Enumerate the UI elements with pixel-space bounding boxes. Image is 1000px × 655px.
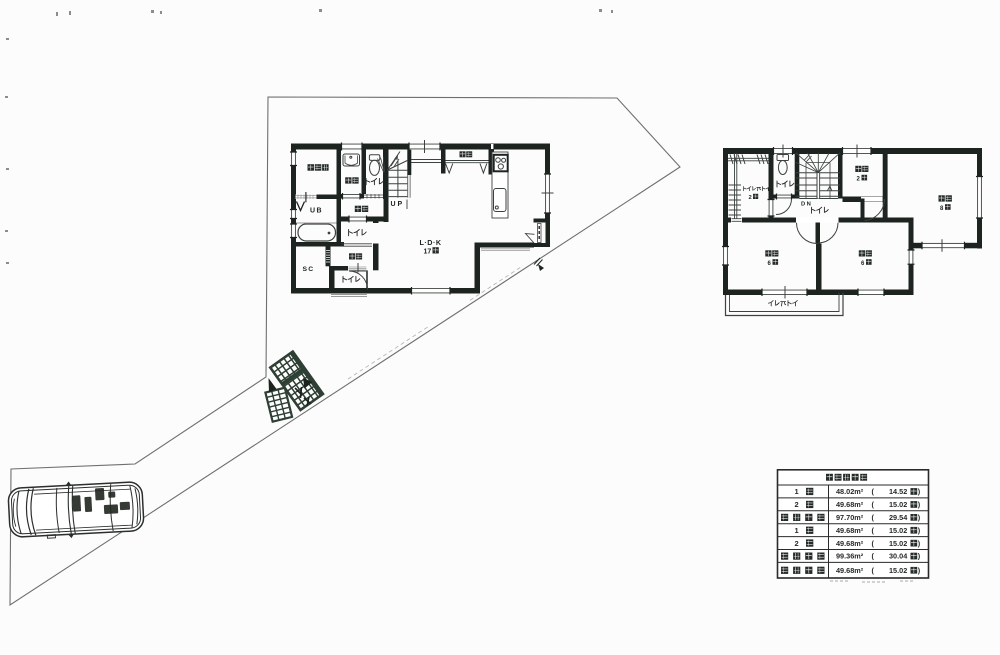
svg-text:97.70m²: 97.70m² xyxy=(836,513,864,522)
svg-text:SC: SC xyxy=(303,266,315,273)
svg-text:14.52: 14.52 xyxy=(889,487,907,496)
svg-text:29.54: 29.54 xyxy=(889,513,908,522)
svg-text:49.68m²: 49.68m² xyxy=(836,539,864,548)
svg-text:2: 2 xyxy=(749,195,752,201)
svg-text:99.36m²: 99.36m² xyxy=(836,552,864,561)
svg-text:15.02: 15.02 xyxy=(889,526,907,535)
svg-text:1: 1 xyxy=(795,526,799,535)
svg-text:1: 1 xyxy=(795,487,799,496)
svg-text:DN: DN xyxy=(801,202,812,208)
svg-text:L·D·K: L·D·K xyxy=(420,238,442,247)
svg-text:UB: UB xyxy=(310,208,323,215)
svg-text:30.04: 30.04 xyxy=(889,552,908,561)
svg-text:49.68m²: 49.68m² xyxy=(836,566,864,575)
svg-text:UP: UP xyxy=(391,201,405,208)
svg-text:48.02m²: 48.02m² xyxy=(836,487,864,496)
svg-text:2: 2 xyxy=(795,500,799,509)
svg-text:17: 17 xyxy=(424,249,432,256)
svg-text:2: 2 xyxy=(795,539,799,548)
svg-text:15.02: 15.02 xyxy=(889,566,907,575)
svg-text:49.68m²: 49.68m² xyxy=(836,526,864,535)
svg-text:15.02: 15.02 xyxy=(889,500,907,509)
svg-text:49.68m²: 49.68m² xyxy=(836,500,864,509)
svg-text:15.02: 15.02 xyxy=(889,539,907,548)
